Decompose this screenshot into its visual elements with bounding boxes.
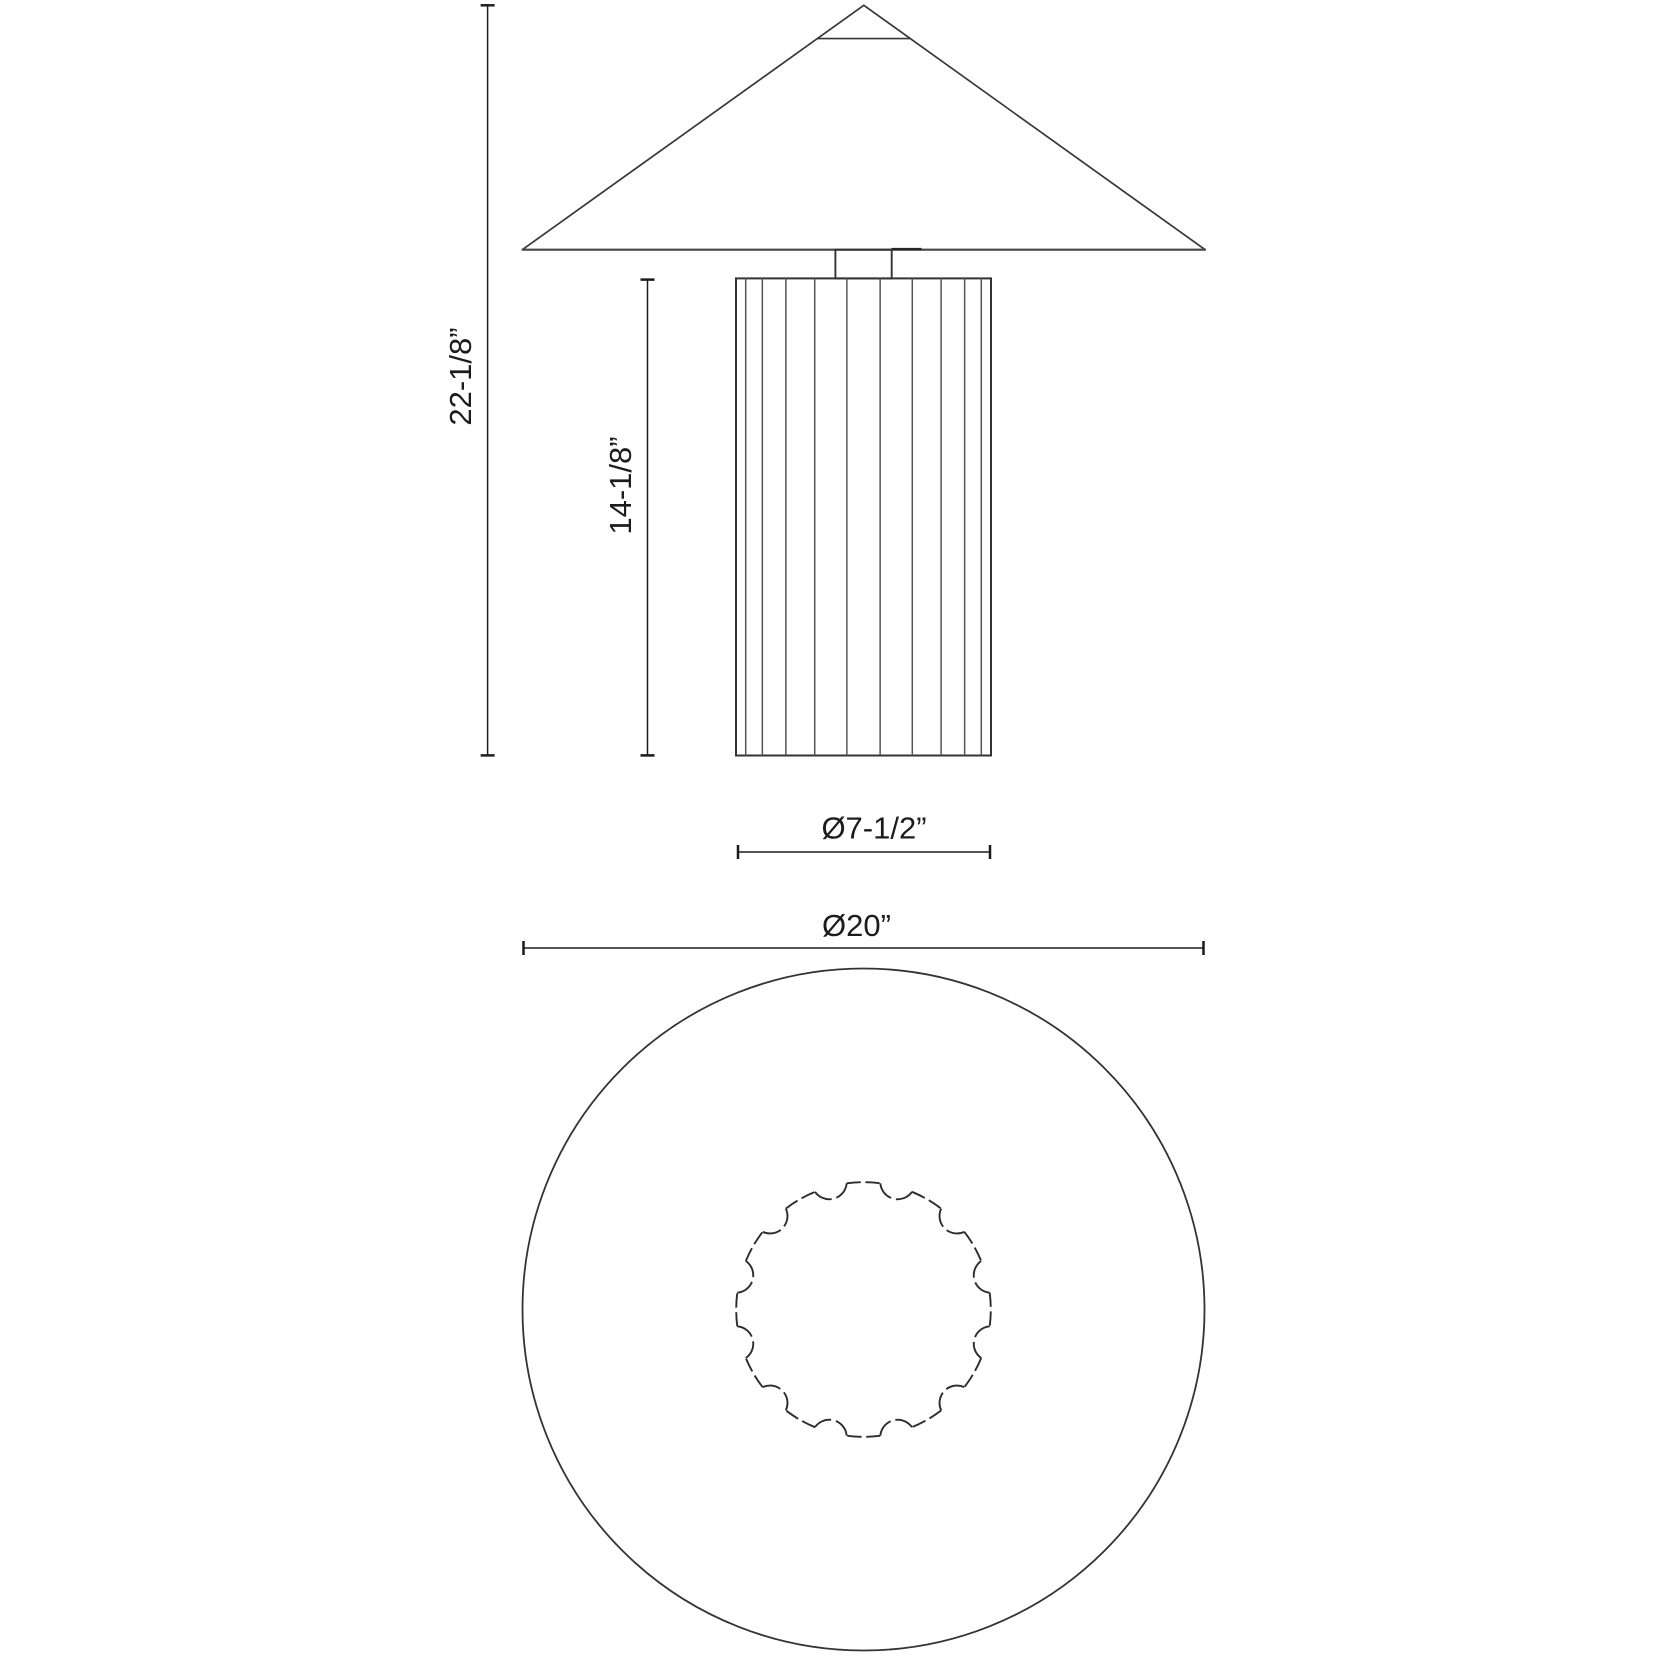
svg-text:Ø20”: Ø20” [822,908,891,943]
svg-text:22-1/8”: 22-1/8” [443,327,478,425]
svg-text:Ø7-1/2”: Ø7-1/2” [821,811,926,846]
svg-text:14-1/8”: 14-1/8” [603,436,638,534]
